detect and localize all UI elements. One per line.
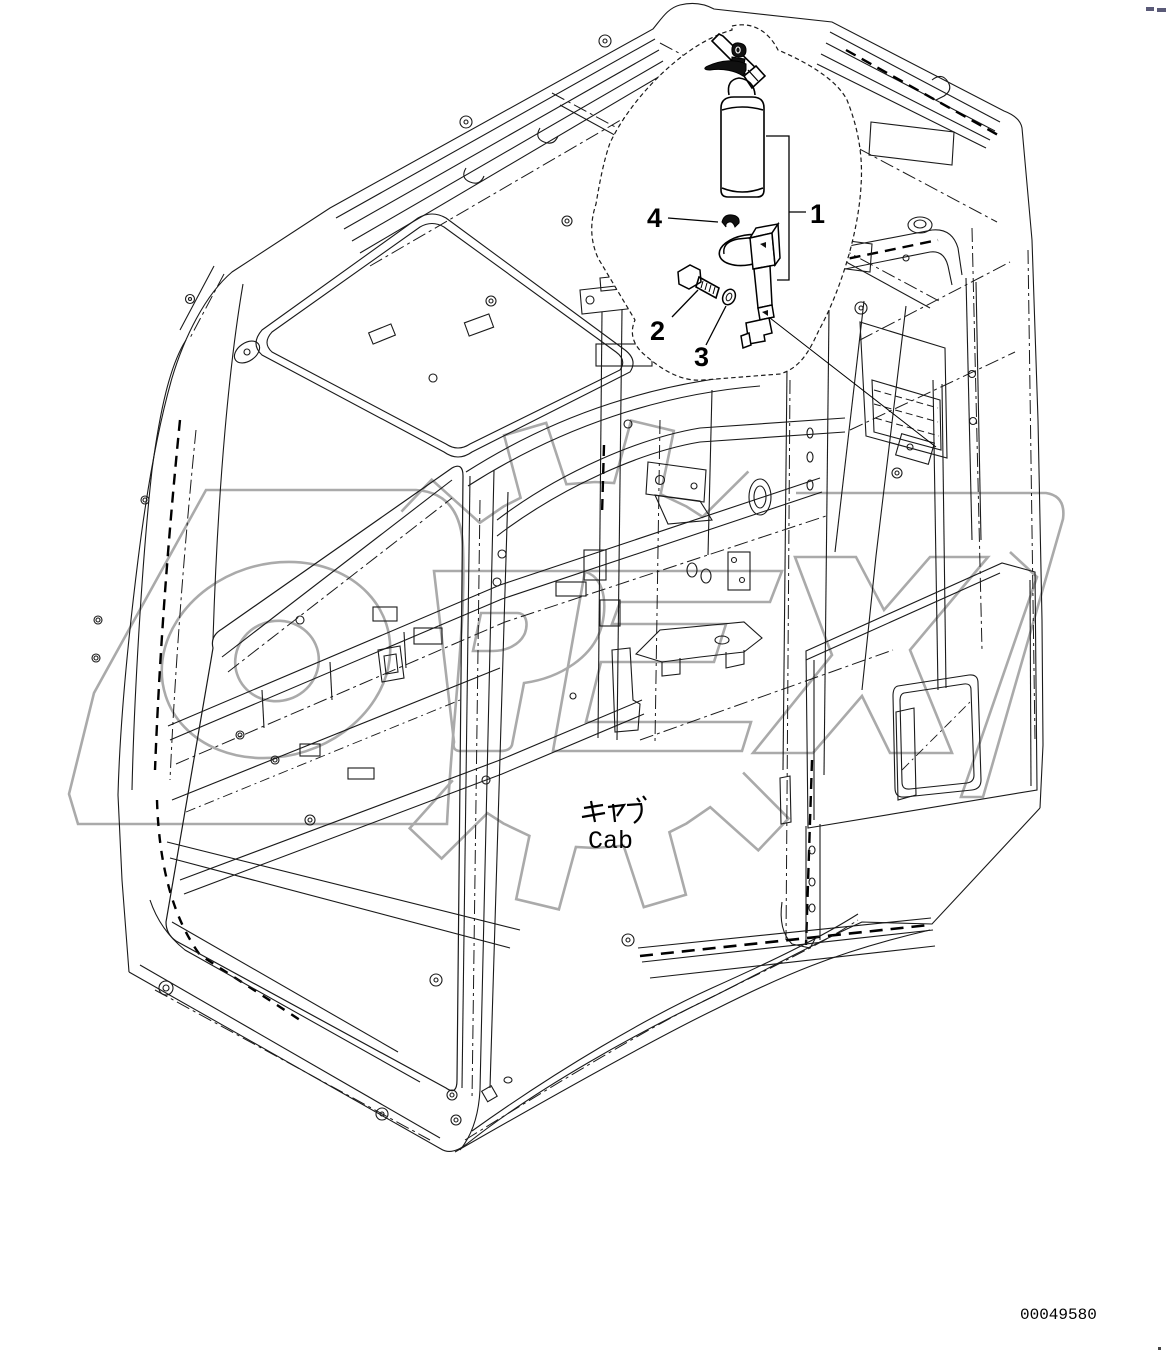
- svg-text:3: 3: [694, 342, 709, 372]
- svg-text:1: 1: [810, 199, 825, 229]
- svg-text:Cab: Cab: [588, 827, 633, 856]
- svg-text:00049580: 00049580: [1020, 1306, 1097, 1324]
- svg-text:4: 4: [647, 203, 662, 233]
- svg-text:2: 2: [650, 316, 665, 346]
